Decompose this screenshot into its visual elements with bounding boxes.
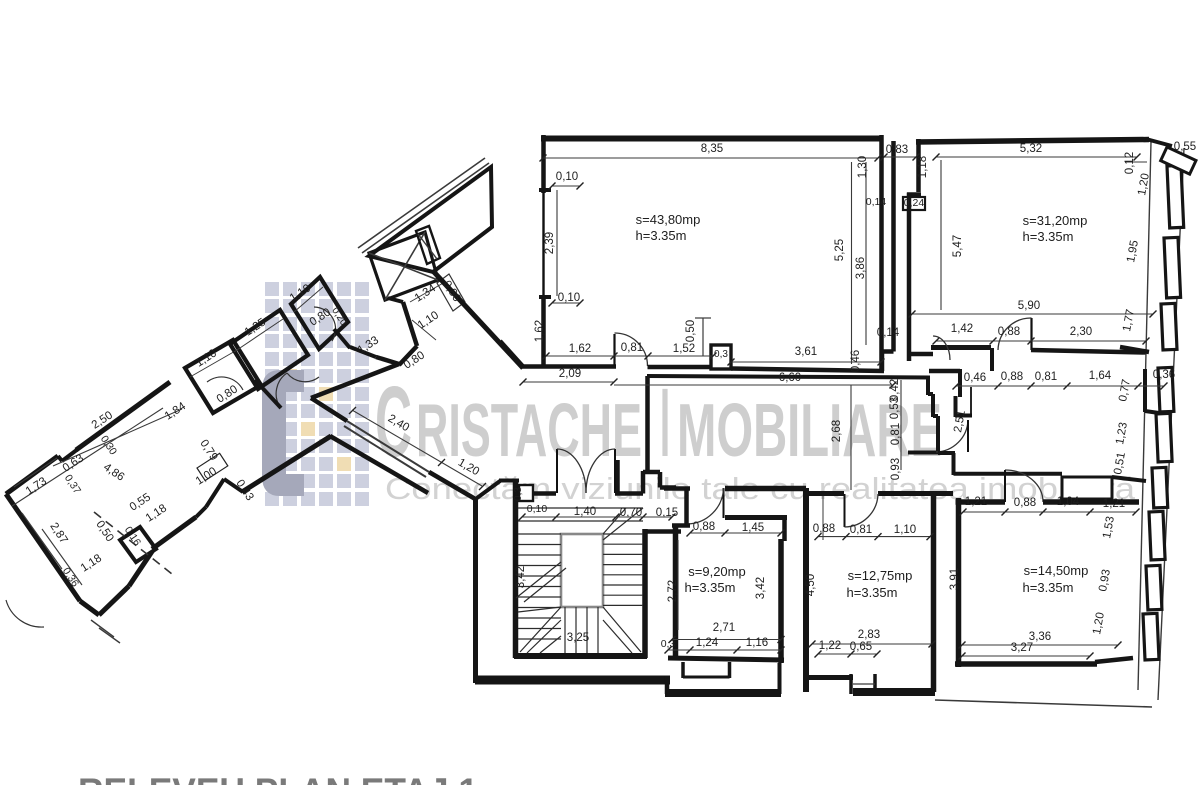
svg-text:1,40: 1,40 bbox=[574, 506, 596, 518]
svg-text:1,62: 1,62 bbox=[569, 343, 591, 355]
svg-text:0,3: 0,3 bbox=[513, 487, 524, 501]
svg-text:0,88: 0,88 bbox=[693, 521, 715, 533]
svg-text:3,42: 3,42 bbox=[515, 566, 527, 588]
svg-text:s=43,80mp: s=43,80mp bbox=[636, 212, 701, 227]
svg-text:RELEVEU PLAN ETAJ 1: RELEVEU PLAN ETAJ 1 bbox=[78, 771, 478, 785]
svg-text:0,81: 0,81 bbox=[890, 423, 902, 445]
svg-text:3,91: 3,91 bbox=[949, 568, 961, 590]
svg-text:1,18: 1,18 bbox=[917, 156, 929, 178]
svg-text:s=9,20mp: s=9,20mp bbox=[688, 564, 745, 579]
svg-text:0,36: 0,36 bbox=[1153, 369, 1175, 381]
svg-text:h=3.35m: h=3.35m bbox=[847, 585, 898, 600]
svg-text:s=14,50mp: s=14,50mp bbox=[1024, 563, 1089, 578]
svg-text:3,86: 3,86 bbox=[855, 257, 867, 279]
svg-text:1,22: 1,22 bbox=[819, 640, 841, 652]
svg-text:MOBILIARE: MOBILIARE bbox=[677, 388, 942, 472]
svg-text:0,81: 0,81 bbox=[1035, 371, 1057, 383]
svg-text:3,25: 3,25 bbox=[567, 632, 589, 644]
svg-text:0,53: 0,53 bbox=[889, 397, 901, 419]
svg-text:0,15: 0,15 bbox=[656, 507, 678, 519]
svg-text:0,88: 0,88 bbox=[998, 326, 1020, 338]
svg-text:RISTACHE: RISTACHE bbox=[416, 388, 642, 472]
svg-text:0,46: 0,46 bbox=[964, 372, 986, 384]
svg-text:0,3: 0,3 bbox=[714, 349, 728, 360]
svg-text:0,10: 0,10 bbox=[527, 503, 548, 515]
svg-text:0,55: 0,55 bbox=[1174, 141, 1196, 153]
svg-text:2,68: 2,68 bbox=[831, 420, 843, 442]
svg-text:h=3.35m: h=3.35m bbox=[685, 580, 736, 595]
svg-text:0,88: 0,88 bbox=[1014, 497, 1036, 509]
svg-text:1,04: 1,04 bbox=[1057, 496, 1080, 508]
svg-text:1,62: 1,62 bbox=[534, 320, 546, 342]
svg-text:2,83: 2,83 bbox=[858, 629, 880, 641]
svg-text:5,47: 5,47 bbox=[952, 235, 964, 257]
svg-text:h=3.35m: h=3.35m bbox=[1023, 580, 1074, 595]
svg-text:0,70: 0,70 bbox=[620, 507, 642, 519]
svg-text:0,24: 0,24 bbox=[904, 197, 925, 209]
svg-text:2,30: 2,30 bbox=[1070, 326, 1092, 338]
svg-text:1,21: 1,21 bbox=[965, 496, 987, 508]
svg-text:0,14: 0,14 bbox=[877, 327, 900, 339]
svg-text:s=31,20mp: s=31,20mp bbox=[1023, 213, 1088, 228]
svg-text:1,45: 1,45 bbox=[742, 522, 764, 534]
svg-text:0,88: 0,88 bbox=[813, 523, 835, 535]
svg-text:8,35: 8,35 bbox=[701, 143, 723, 155]
svg-text:0,81: 0,81 bbox=[850, 524, 872, 536]
svg-text:1,52: 1,52 bbox=[673, 343, 695, 355]
svg-text:2,71: 2,71 bbox=[713, 622, 735, 634]
svg-text:1,42: 1,42 bbox=[951, 323, 973, 335]
svg-text:0,81: 0,81 bbox=[621, 342, 643, 354]
svg-text:I: I bbox=[660, 368, 670, 477]
svg-text:3,42: 3,42 bbox=[755, 577, 767, 599]
svg-text:6,60: 6,60 bbox=[779, 372, 801, 384]
svg-text:0,93: 0,93 bbox=[890, 458, 902, 480]
svg-text:0,88: 0,88 bbox=[1001, 371, 1023, 383]
svg-text:5,25: 5,25 bbox=[834, 239, 846, 261]
svg-text:3,27: 3,27 bbox=[1011, 642, 1033, 654]
svg-text:2,09: 2,09 bbox=[559, 368, 581, 380]
svg-text:0,46: 0,46 bbox=[850, 350, 862, 372]
svg-text:0,14: 0,14 bbox=[866, 196, 887, 208]
svg-text:1,64: 1,64 bbox=[1089, 370, 1112, 382]
svg-text:s=12,75mp: s=12,75mp bbox=[848, 568, 913, 583]
svg-text:h=3.35m: h=3.35m bbox=[636, 228, 687, 243]
svg-text:1,10: 1,10 bbox=[894, 524, 916, 536]
svg-text:h=3.35m: h=3.35m bbox=[1023, 229, 1074, 244]
svg-text:1,21: 1,21 bbox=[1103, 498, 1125, 510]
svg-text:1,16: 1,16 bbox=[746, 637, 768, 649]
svg-text:0,10: 0,10 bbox=[558, 292, 580, 304]
svg-text:0,10: 0,10 bbox=[556, 171, 578, 183]
svg-text:4,50: 4,50 bbox=[805, 574, 817, 596]
svg-text:2,72: 2,72 bbox=[667, 580, 679, 602]
svg-text:0,50: 0,50 bbox=[685, 320, 697, 342]
svg-text:3,61: 3,61 bbox=[795, 346, 817, 358]
svg-text:2,39: 2,39 bbox=[544, 232, 556, 254]
svg-text:0,83: 0,83 bbox=[886, 144, 908, 156]
svg-text:0,3: 0,3 bbox=[661, 638, 676, 650]
svg-text:0,12: 0,12 bbox=[1124, 152, 1136, 174]
svg-text:1,30: 1,30 bbox=[857, 156, 869, 178]
svg-text:1,24: 1,24 bbox=[696, 637, 719, 649]
svg-text:5,32: 5,32 bbox=[1020, 143, 1042, 155]
svg-text:5,90: 5,90 bbox=[1018, 300, 1040, 312]
